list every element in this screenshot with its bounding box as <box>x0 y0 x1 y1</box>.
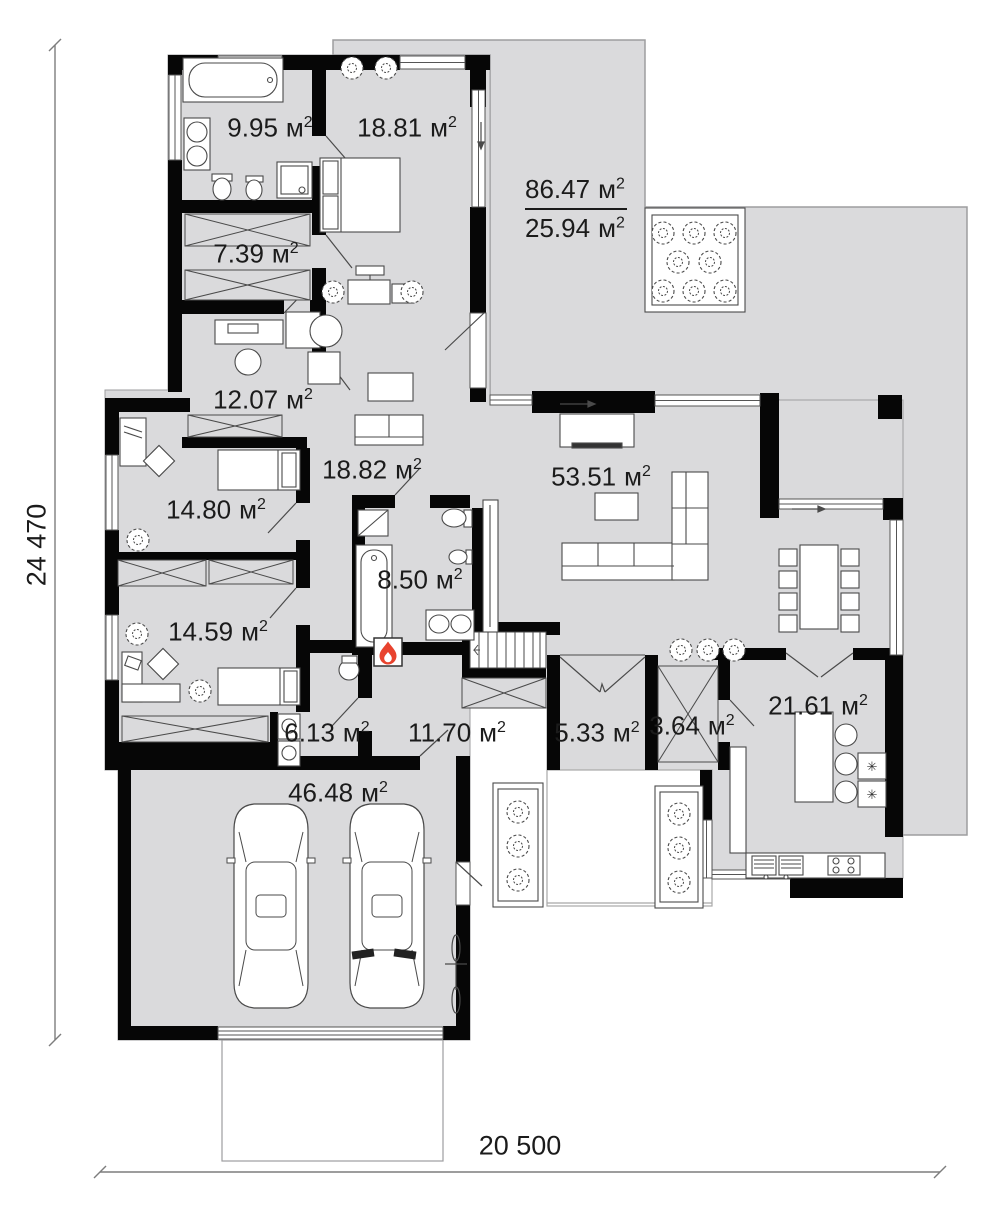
plant-icon <box>667 251 689 273</box>
plant-icon <box>341 57 363 79</box>
car <box>227 804 315 1008</box>
room-area-label-bedroom-master: 18.81м2 <box>357 113 457 144</box>
room-area-label-porch: 5.33м2 <box>554 718 639 749</box>
window <box>472 90 485 207</box>
fireplace-icon <box>374 638 402 666</box>
garage-door <box>218 1027 443 1039</box>
room-area-label-hall: 18.82м2 <box>322 455 422 486</box>
floor-plan-canvas: ✳ ✳ <box>0 0 1000 1206</box>
wardrobe-unit <box>185 270 310 300</box>
tv-unit <box>560 414 634 448</box>
freezer-symbol: ✳ <box>867 787 878 802</box>
window <box>490 395 532 405</box>
window-sliding <box>779 499 883 509</box>
dimension-label-height: 24 470 <box>22 504 53 587</box>
room-area-label-living-room: 53.51м2 <box>551 462 651 493</box>
plant-icon <box>714 280 736 302</box>
wardrobe-unit <box>209 560 293 584</box>
counter <box>730 747 746 853</box>
wardrobe-unit <box>122 716 268 742</box>
driveway <box>222 1040 443 1161</box>
room-area-label-garage: 46.48м2 <box>288 778 388 809</box>
plant-icon <box>652 280 674 302</box>
bar-stool <box>835 753 857 775</box>
window <box>400 56 465 69</box>
bathtub <box>183 58 283 102</box>
bar-stool <box>835 781 857 803</box>
room-area-label-office: 12.07м2 <box>213 385 313 416</box>
double-sink <box>184 118 210 170</box>
wardrobe-unit <box>118 560 206 586</box>
desk <box>215 320 283 344</box>
plant-icon <box>683 280 705 302</box>
plant-icon <box>699 251 721 273</box>
loveseat <box>355 415 423 445</box>
plant-icon <box>507 801 529 823</box>
plant-icon <box>668 803 690 825</box>
shower <box>277 162 312 198</box>
fridge-symbol: ✳ <box>867 759 878 774</box>
room-area-label-laundry: 6.13м2 <box>284 718 369 749</box>
wardrobe-unit <box>462 678 546 708</box>
round-table <box>310 315 342 347</box>
floor-plan-drawing: ✳ ✳ <box>0 0 1000 1206</box>
chair <box>235 349 261 375</box>
room-area-label-bathroom: 9.95м2 <box>227 113 312 144</box>
plant-icon <box>507 835 529 857</box>
sink <box>358 510 388 536</box>
plant-icon <box>322 281 344 303</box>
plant-icon <box>189 680 211 702</box>
desk <box>120 418 146 466</box>
plant-icon <box>697 639 719 661</box>
toilet <box>442 509 472 527</box>
plant-icon <box>723 639 745 661</box>
room-area-label-corridor: 11.70м2 <box>408 718 506 749</box>
bidet <box>449 550 472 564</box>
water-heater <box>339 656 359 680</box>
plant-icon <box>683 222 705 244</box>
terrace-covered-area: 25.94м2 <box>525 210 627 244</box>
room-area-label-pantry: 3.64м2 <box>649 711 734 742</box>
room-area-label-kitchen: 21.61м2 <box>768 691 868 722</box>
window <box>106 455 118 530</box>
plant-icon <box>375 57 397 79</box>
wardrobe-unit <box>188 415 282 437</box>
terrace-pillar <box>878 395 902 419</box>
cabinet <box>308 352 340 384</box>
single-bed <box>218 668 300 705</box>
entry-closet <box>483 500 498 632</box>
plant-icon <box>401 281 423 303</box>
plant-icon <box>127 529 149 551</box>
window <box>106 615 118 680</box>
double-bed <box>320 158 400 232</box>
room-area-label-bedroom-2: 14.80м2 <box>166 495 266 526</box>
window <box>169 75 181 160</box>
dimension-label-width: 20 500 <box>479 1131 562 1162</box>
plant-icon <box>652 222 674 244</box>
plant-icon <box>668 837 690 859</box>
double-sink <box>426 610 474 640</box>
terrace-area-label: 86.47м2 25.94м2 <box>525 174 627 244</box>
bar-stool <box>835 724 857 746</box>
bidet <box>246 176 263 200</box>
plant-icon <box>668 871 690 893</box>
plant-icon <box>714 222 736 244</box>
window-sliding <box>655 395 760 406</box>
car <box>343 804 431 1008</box>
kitchen-island <box>795 712 833 802</box>
plant-icon <box>126 623 148 645</box>
terrace-total-area: 86.47м2 <box>525 174 627 210</box>
toilet <box>212 174 232 200</box>
bathtub <box>356 545 392 647</box>
room-area-label-wardrobe: 7.39м2 <box>213 239 298 270</box>
stove <box>828 856 860 875</box>
coffee-table <box>595 493 638 520</box>
stairs <box>470 632 546 668</box>
room-area-label-bedroom-3: 14.59м2 <box>168 617 268 648</box>
plant-icon <box>670 639 692 661</box>
room-area-label-bathroom-2: 8.50м2 <box>377 565 462 596</box>
plant-icon <box>507 869 529 891</box>
window <box>890 520 903 655</box>
single-bed <box>218 450 300 490</box>
coffee-table <box>368 373 413 401</box>
dining-table <box>800 545 838 629</box>
